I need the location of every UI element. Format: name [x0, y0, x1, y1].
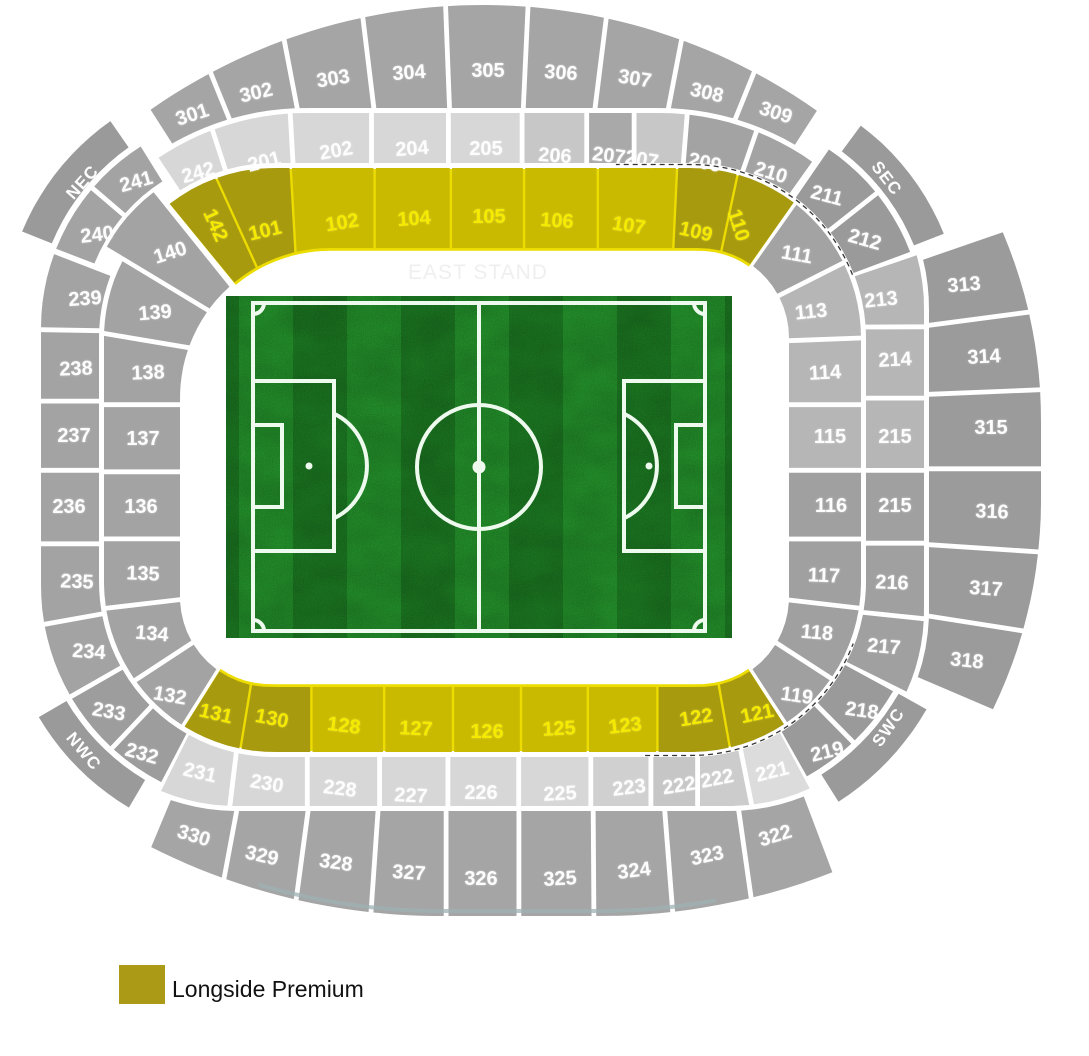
- svg-text:227: 227: [394, 784, 428, 808]
- svg-text:EAST STAND: EAST STAND: [408, 261, 548, 284]
- svg-text:325: 325: [543, 867, 577, 891]
- svg-text:226: 226: [464, 782, 497, 804]
- svg-text:317: 317: [969, 577, 1004, 601]
- svg-text:117: 117: [807, 564, 840, 587]
- svg-text:138: 138: [131, 361, 165, 384]
- svg-text:128: 128: [326, 713, 362, 739]
- svg-text:215: 215: [878, 495, 911, 517]
- svg-text:239: 239: [68, 287, 103, 311]
- svg-text:Longside Premium: Longside Premium: [172, 976, 364, 1002]
- svg-text:136: 136: [124, 496, 157, 518]
- svg-text:113: 113: [794, 299, 828, 324]
- svg-text:216: 216: [875, 571, 909, 594]
- svg-text:126: 126: [470, 721, 503, 743]
- svg-text:116: 116: [815, 495, 847, 517]
- svg-text:135: 135: [126, 562, 160, 585]
- svg-text:137: 137: [126, 428, 159, 450]
- svg-text:204: 204: [395, 137, 431, 161]
- svg-text:119: 119: [779, 683, 814, 709]
- svg-text:314: 314: [967, 345, 1002, 369]
- svg-text:304: 304: [392, 61, 428, 85]
- svg-text:240: 240: [79, 222, 115, 248]
- svg-text:306: 306: [544, 61, 579, 85]
- svg-text:205: 205: [469, 138, 502, 160]
- svg-text:106: 106: [540, 209, 575, 233]
- svg-text:327: 327: [392, 861, 427, 885]
- svg-text:236: 236: [52, 496, 85, 518]
- svg-text:315: 315: [974, 417, 1007, 439]
- svg-text:206: 206: [538, 144, 573, 168]
- svg-text:237: 237: [57, 425, 90, 447]
- svg-text:215: 215: [878, 426, 911, 448]
- svg-text:214: 214: [878, 348, 913, 372]
- svg-text:118: 118: [800, 621, 834, 646]
- svg-text:313: 313: [947, 273, 982, 298]
- svg-text:134: 134: [134, 622, 170, 647]
- svg-text:105: 105: [472, 206, 505, 228]
- svg-text:223: 223: [611, 775, 647, 801]
- svg-text:326: 326: [464, 868, 497, 890]
- svg-text:125: 125: [542, 717, 576, 741]
- svg-text:234: 234: [72, 640, 108, 664]
- svg-text:139: 139: [138, 301, 173, 326]
- svg-text:115: 115: [814, 426, 846, 448]
- svg-text:213: 213: [863, 287, 898, 312]
- svg-text:228: 228: [322, 776, 358, 802]
- svg-text:318: 318: [949, 648, 984, 673]
- svg-text:127: 127: [399, 717, 433, 741]
- svg-text:104: 104: [397, 207, 433, 231]
- svg-text:324: 324: [616, 858, 653, 884]
- svg-text:305: 305: [471, 60, 504, 82]
- svg-text:235: 235: [60, 570, 94, 593]
- svg-text:328: 328: [318, 850, 354, 876]
- svg-text:207: 207: [591, 143, 627, 169]
- svg-text:218: 218: [844, 698, 880, 724]
- svg-text:225: 225: [543, 782, 577, 806]
- svg-text:114: 114: [808, 361, 842, 385]
- svg-text:132: 132: [151, 682, 188, 709]
- svg-text:217: 217: [866, 635, 901, 660]
- svg-text:123: 123: [607, 713, 642, 738]
- svg-text:238: 238: [59, 357, 93, 380]
- svg-text:316: 316: [975, 500, 1009, 523]
